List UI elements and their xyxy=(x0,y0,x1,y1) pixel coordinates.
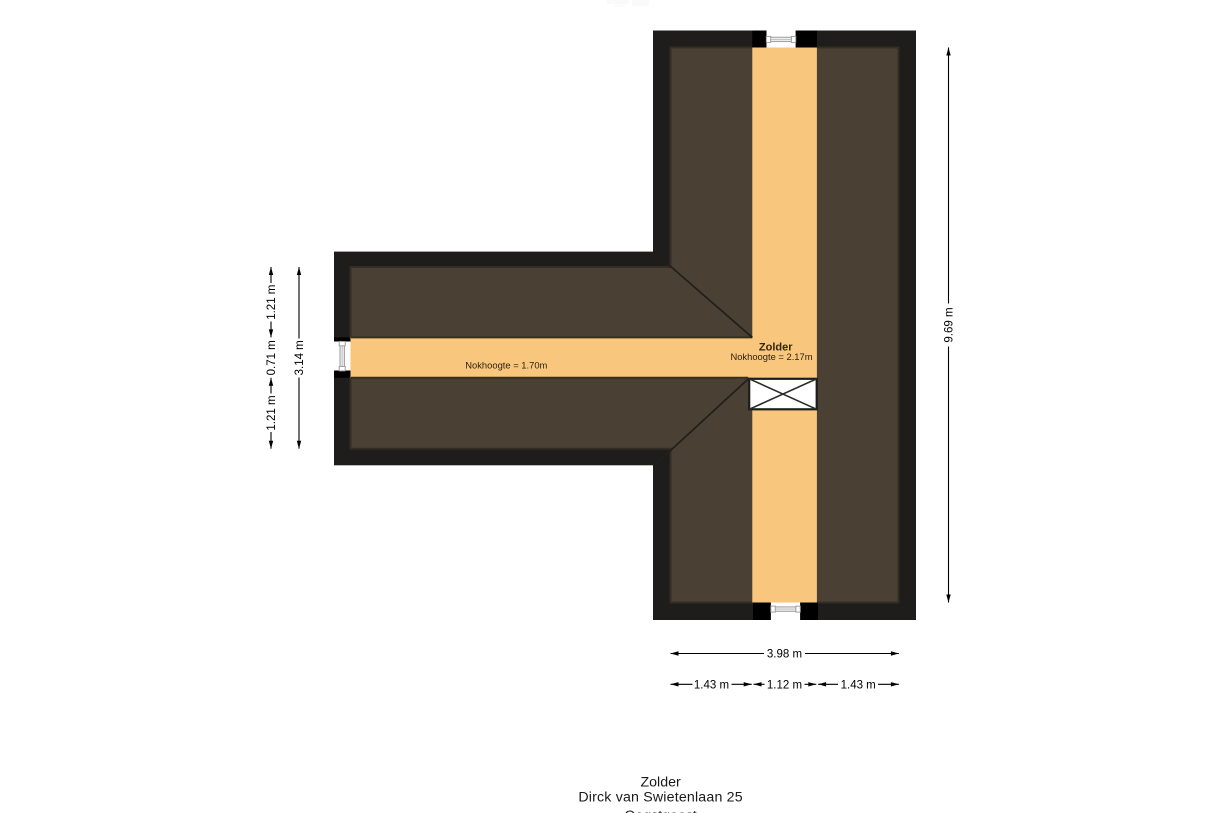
svg-text:9.69 m: 9.69 m xyxy=(944,307,956,342)
svg-text:1.43 m: 1.43 m xyxy=(841,679,876,691)
svg-text:Zolder: Zolder xyxy=(640,775,680,791)
svg-text:1.21 m: 1.21 m xyxy=(266,395,278,430)
svg-text:1.21 m: 1.21 m xyxy=(266,285,278,320)
svg-text:3.14 m: 3.14 m xyxy=(294,340,306,375)
svg-text:3.98 m: 3.98 m xyxy=(767,649,802,661)
svg-text:Dirck van Swietenlaan 25: Dirck van Swietenlaan 25 xyxy=(578,790,742,806)
svg-text:Oegstgeest: Oegstgeest xyxy=(624,808,697,813)
svg-text:1.12 m: 1.12 m xyxy=(767,679,802,691)
svg-text:1.43 m: 1.43 m xyxy=(694,679,729,691)
svg-text:Nokhoogte = 2.17m: Nokhoogte = 2.17m xyxy=(730,351,812,362)
svg-text:0.71 m: 0.71 m xyxy=(266,340,278,375)
svg-text:Nokhoogte = 1.70m: Nokhoogte = 1.70m xyxy=(465,359,547,370)
